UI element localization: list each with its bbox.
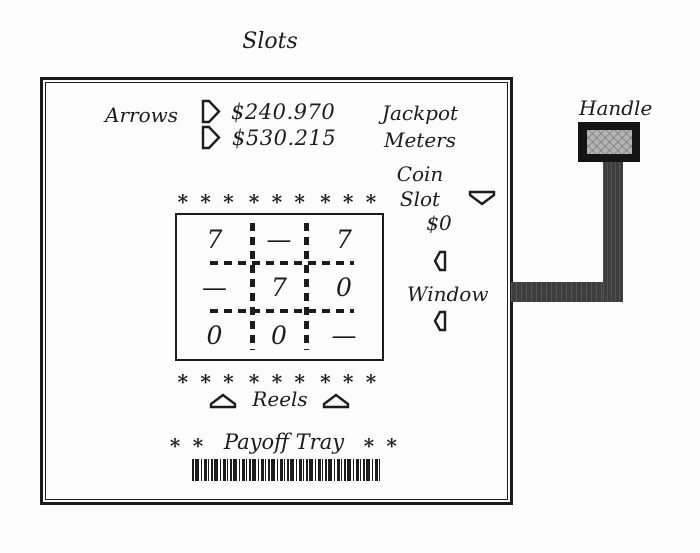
window-label: Window <box>407 281 487 307</box>
reel-symbol: 7 <box>306 215 382 263</box>
asterisk-group: ∗ ∗ <box>362 430 400 454</box>
coin-slot-label-line: Coin <box>375 162 465 187</box>
up-arrow-icon <box>322 393 350 409</box>
figure-title: Slots <box>200 29 340 54</box>
jackpot-meter-value: $240.970 <box>231 100 335 125</box>
reel-symbol: — <box>177 263 252 311</box>
asterisk-group: ∗ ∗ <box>168 430 206 454</box>
reel-symbol-grid: 7 — 7 — 7 0 0 0 — <box>177 215 382 359</box>
jackpot-label-line: Meters <box>371 127 469 154</box>
asterisk-group: ∗ ∗ ∗ <box>247 186 307 210</box>
reel-stars-top: ∗ ∗ ∗ ∗ ∗ ∗ ∗ ∗ ∗ <box>176 186 379 210</box>
reel-window: 7 — 7 — 7 0 0 0 — <box>175 213 384 361</box>
coin-slot-label: Coin Slot <box>375 162 465 212</box>
down-arrow-icon <box>468 190 496 206</box>
reel-symbol: 0 <box>306 263 382 311</box>
reel-symbol: 0 <box>177 311 252 359</box>
reel-symbol: 0 <box>252 311 306 359</box>
handle-shaft <box>603 161 623 302</box>
jackpot-label-line: Jackpot <box>371 100 469 127</box>
reel-symbol: 7 <box>252 263 306 311</box>
left-arrow-icon <box>433 250 447 272</box>
reel-symbol: — <box>252 215 306 263</box>
reel-symbol: 7 <box>177 215 252 263</box>
arrows-label: Arrows <box>105 102 185 128</box>
figure-canvas: Slots Arrows $240.970 $530.215 Jackpot M… <box>0 0 700 553</box>
asterisk-group: ∗ ∗ ∗ <box>319 366 379 390</box>
jackpot-meters-label: Jackpot Meters <box>371 100 469 154</box>
reel-symbol: — <box>306 311 382 359</box>
grid-divider-horizontal <box>210 261 354 265</box>
coin-slot-label-line: Slot <box>375 187 465 212</box>
handle-label: Handle <box>579 96 645 120</box>
jackpot-meter-value: $530.215 <box>232 126 336 151</box>
handle-knob <box>578 122 640 162</box>
handle-grip <box>587 130 632 154</box>
grid-divider-vertical <box>304 223 309 350</box>
payoff-tray-label-row: ∗ ∗ Payoff Tray ∗ ∗ <box>141 430 427 454</box>
left-arrow-icon <box>433 310 447 332</box>
up-arrow-icon <box>209 393 237 409</box>
grid-divider-horizontal <box>210 309 354 313</box>
asterisk-group: ∗ ∗ ∗ <box>319 186 379 210</box>
right-arrow-icon <box>201 99 221 124</box>
asterisk-group: ∗ ∗ ∗ <box>176 186 236 210</box>
payoff-tray-label: Payoff Tray <box>224 430 344 454</box>
reels-label: Reels <box>250 386 310 412</box>
slot-machine-panel: Arrows $240.970 $530.215 Jackpot Meters … <box>40 77 513 505</box>
asterisk-group: ∗ ∗ ∗ <box>176 366 236 390</box>
right-arrow-icon <box>201 125 221 150</box>
grid-divider-vertical <box>250 223 255 350</box>
payoff-tray-hatch <box>192 459 382 481</box>
coin-slot-value: $0 <box>409 211 469 235</box>
